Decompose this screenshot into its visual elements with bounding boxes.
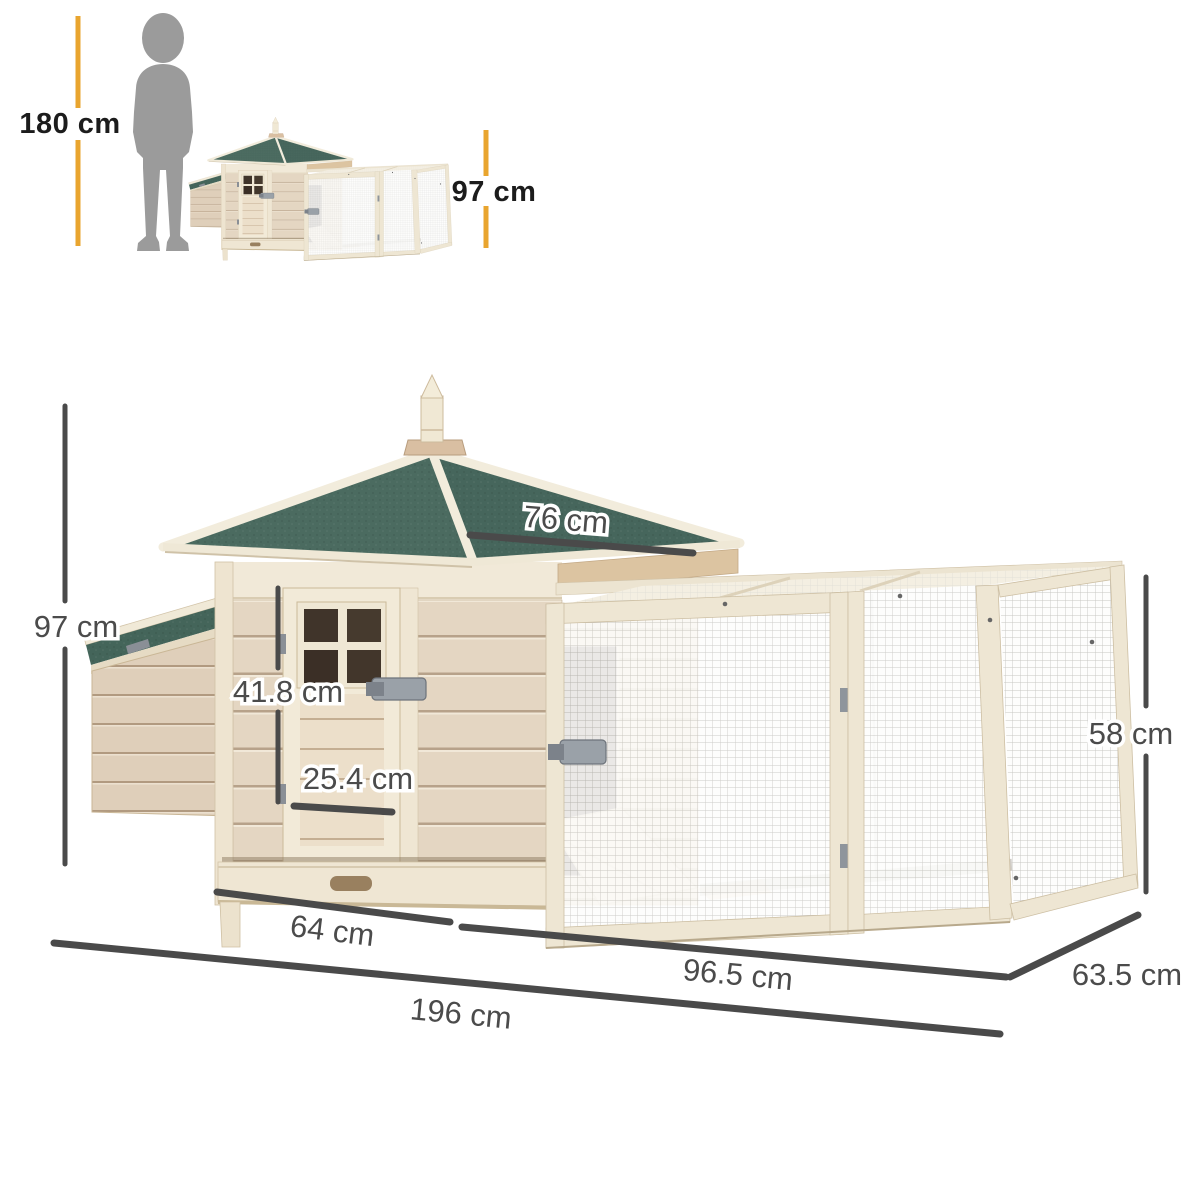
coop-height-label: 97 cm xyxy=(452,176,537,208)
dim-label-overall-length: 196 cm xyxy=(409,991,514,1036)
coop-main xyxy=(84,375,1138,948)
dim-label-roof-width: 76 cm xyxy=(522,499,609,541)
dim-label-door-height: 41.8 cm xyxy=(233,674,343,709)
person-height-label: 180 cm xyxy=(19,108,120,140)
dim-label-overall-height: 97 cm xyxy=(34,609,118,644)
dim-line-overall-length xyxy=(54,943,1000,1034)
dim-label-coop-width: 64 cm xyxy=(288,908,376,953)
dim-label-run-depth: 63.5 cm xyxy=(1072,957,1182,992)
diagram-canvas: 180 cm 97 cm 97 cm 76 cm 41.8 cm 25.4 cm… xyxy=(0,0,1200,1200)
dim-label-run-height: 58 cm xyxy=(1089,716,1173,751)
product-dimension-diagram: 180 cm 97 cm 97 cm 76 cm 41.8 cm 25.4 cm… xyxy=(0,0,1200,1200)
coop-thumbnail xyxy=(189,117,453,260)
person-silhouette-icon xyxy=(133,13,193,251)
dim-label-door-width: 25.4 cm xyxy=(303,761,413,796)
scale-reference-section: 180 cm 97 cm xyxy=(19,13,536,261)
